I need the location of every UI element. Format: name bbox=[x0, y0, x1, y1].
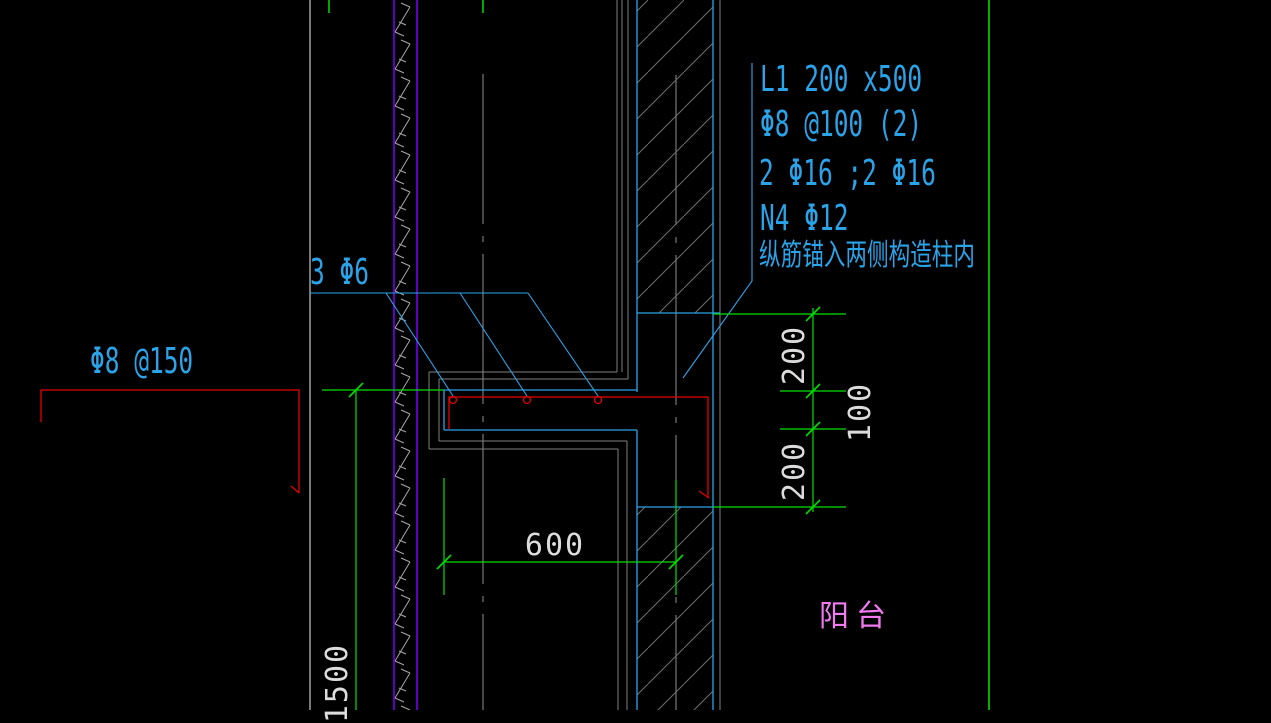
wall-mesh-label: Φ8 @150 bbox=[90, 344, 242, 380]
cad-viewport: { "colors": { "background": "#000000", "… bbox=[0, 0, 1271, 710]
insulation-band bbox=[394, 0, 417, 710]
lower-column-hatch bbox=[637, 507, 713, 710]
rebar-lines bbox=[41, 390, 709, 498]
insulation-hatch bbox=[395, 0, 418, 710]
dim-text-200-bottom: 200 bbox=[780, 441, 810, 501]
beam-spec-line-2: Φ8 @100 (2) bbox=[760, 107, 998, 143]
top-bars-leader-3 bbox=[528, 293, 598, 396]
wall-mesh-bar-hook bbox=[291, 486, 299, 493]
dim-text-100: 100 bbox=[846, 382, 876, 442]
column-hatch bbox=[637, 0, 713, 710]
beam-spec-line-4: N4 Φ12 bbox=[760, 201, 890, 237]
top-bars-leader-2 bbox=[460, 293, 527, 396]
beam-spec-line-5: 纵筋锚入两侧构造柱内 bbox=[759, 241, 1059, 271]
beam-bar bbox=[449, 397, 708, 498]
dim-text-1500: 1500 bbox=[323, 643, 353, 723]
beam-spec-line-1: L1 200 x500 bbox=[760, 62, 998, 98]
dim-text-200-top: 200 bbox=[780, 325, 810, 385]
beam-spec-line-3: 2 Φ16 ;2 Φ16 bbox=[759, 156, 1019, 192]
room-label: 阳台 bbox=[819, 602, 893, 632]
upper-column-hatch bbox=[637, 0, 713, 313]
wall-mesh-bar bbox=[41, 390, 299, 493]
top-bars-label: 3 Φ6 bbox=[310, 255, 397, 291]
dim-text-600: 600 bbox=[525, 531, 585, 561]
